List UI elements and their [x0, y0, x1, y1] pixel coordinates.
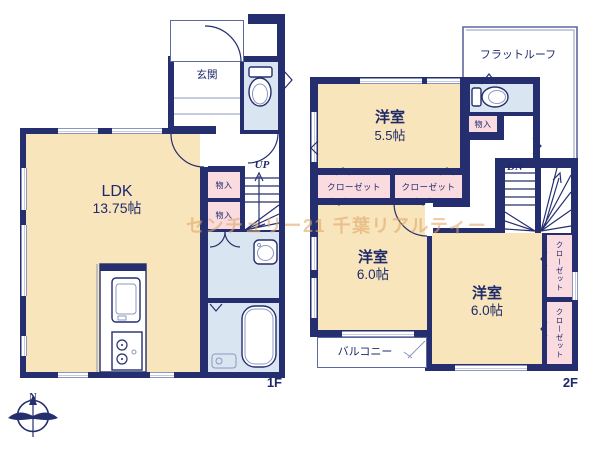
storage-1f-a: 物入	[208, 172, 240, 198]
window	[342, 331, 414, 337]
vent-chevron	[284, 71, 292, 89]
hall-2f	[504, 116, 533, 140]
stairs-2f-left	[505, 168, 535, 233]
room-washroom	[208, 232, 279, 298]
window	[360, 78, 422, 84]
window	[150, 372, 174, 378]
closet-label: クローゼット	[554, 241, 565, 292]
closet-2f-b: クローゼット	[395, 175, 462, 198]
stairs-dn-label: DN	[498, 161, 532, 173]
stairs-2f-winder	[541, 168, 571, 233]
bedroom2-name-label: 洋室	[312, 250, 434, 267]
room-ldk	[26, 134, 200, 372]
closet-label: クローゼット	[554, 308, 565, 359]
floorplan-canvas: 物入 物入 物入 クローゼット クローゼット クローゼット クローゼット	[0, 0, 600, 450]
bedroom1-name-label: 洋室	[328, 110, 452, 127]
room-toilet-2f	[470, 84, 533, 112]
wall	[277, 14, 285, 62]
entrance-label: 玄関	[174, 70, 240, 82]
window	[58, 372, 88, 378]
wall	[200, 134, 208, 378]
closet-label: クローゼット	[327, 181, 381, 193]
doorway-gap	[200, 134, 208, 167]
compass-icon: N	[8, 392, 58, 437]
window	[427, 78, 460, 84]
storage-label: 物入	[475, 119, 492, 130]
compass-north-label: N	[29, 392, 37, 403]
flat-roof-label: フラットルーフ	[458, 49, 578, 61]
window	[21, 168, 27, 210]
room-bathroom	[208, 303, 279, 372]
window	[455, 365, 527, 371]
storage-2f: 物入	[469, 116, 497, 132]
floor2-label: 2F	[546, 375, 578, 390]
window	[112, 128, 162, 134]
watermark-text: センチュリー21 千葉リアルティー	[186, 212, 487, 238]
storage-label: 物入	[216, 180, 233, 191]
window	[311, 278, 317, 318]
closet-label: クローゼット	[401, 181, 455, 193]
balcony-label: バルコニー	[317, 346, 413, 358]
bedroom2-size-label: 6.0帖	[312, 268, 434, 283]
closet-2f-c: クローゼット	[547, 235, 572, 297]
window	[572, 272, 578, 300]
floor1-label: 1F	[250, 375, 282, 390]
window	[21, 336, 27, 356]
room-toilet-1f	[244, 62, 278, 130]
bedroom3-name-label: 洋室	[427, 286, 547, 303]
bedroom1-size-label: 5.5帖	[328, 129, 452, 143]
window	[311, 112, 317, 162]
window	[21, 225, 27, 296]
ldk-size-label: 13.75帖	[53, 201, 181, 216]
closet-2f-a: クローゼット	[318, 175, 390, 198]
bedroom3-size-label: 6.0帖	[427, 304, 547, 319]
porch	[170, 20, 244, 62]
ldk-name-label: LDK	[63, 183, 171, 201]
stairs-up-label: UP	[245, 159, 279, 171]
closet-2f-d: クローゼット	[547, 302, 572, 364]
window	[58, 128, 98, 134]
